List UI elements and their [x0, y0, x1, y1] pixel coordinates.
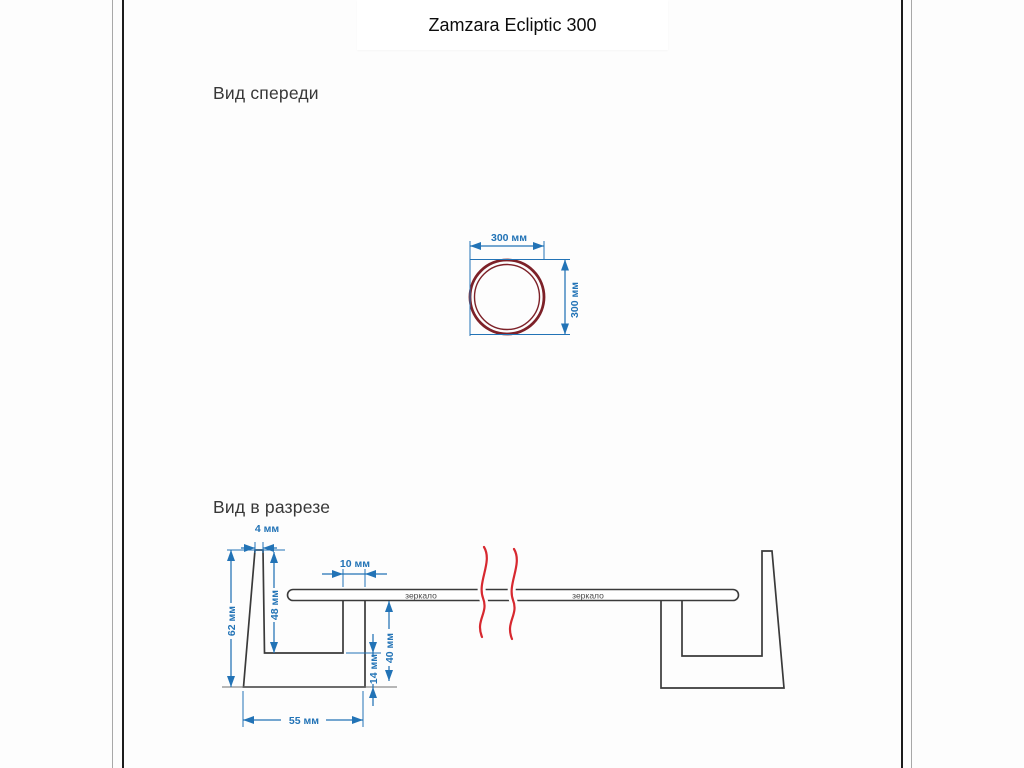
mirror-ring-inner: [475, 265, 540, 330]
dim-label-base-width: 55 мм: [289, 715, 319, 727]
dim-mirror-to-base: 40 мм: [382, 601, 397, 681]
mirror-label-left: зеркало: [405, 591, 437, 601]
dim-label-base-thickness: 14 мм: [368, 654, 380, 684]
dim-label-frame-height: 62 мм: [226, 606, 238, 636]
dim-label-frame-wall-thickness: 10 мм: [340, 558, 370, 570]
dim-label-mirror-to-base: 40 мм: [384, 633, 396, 663]
dim-label-frame-inner-depth: 48 мм: [269, 590, 281, 620]
right-frame-profile: [661, 551, 784, 688]
dim-base-width: 55 мм: [243, 691, 363, 728]
mirror-label-right: зеркало: [572, 591, 604, 601]
dim-frame-inner-depth: 48 мм: [267, 552, 282, 653]
section-view-drawing: зеркало зеркало 4 мм 62 мм: [222, 523, 784, 728]
dim-frame-wall-thickness: 10 мм: [322, 558, 387, 587]
dim-label-diameter-v: 300 мм: [569, 282, 581, 318]
dim-label-frame-top-thickness: 4 мм: [255, 523, 280, 535]
mirror-ring-outer: [470, 260, 544, 334]
dim-label-diameter-h: 300 мм: [491, 232, 527, 244]
left-frame-profile: [244, 550, 366, 687]
front-view-drawing: 300 мм 300 мм: [470, 232, 581, 336]
dim-frame-top-thickness: 4 мм: [241, 523, 279, 553]
technical-drawing: 300 мм 300 мм зеркало зеркало 4 мм: [0, 0, 1024, 768]
